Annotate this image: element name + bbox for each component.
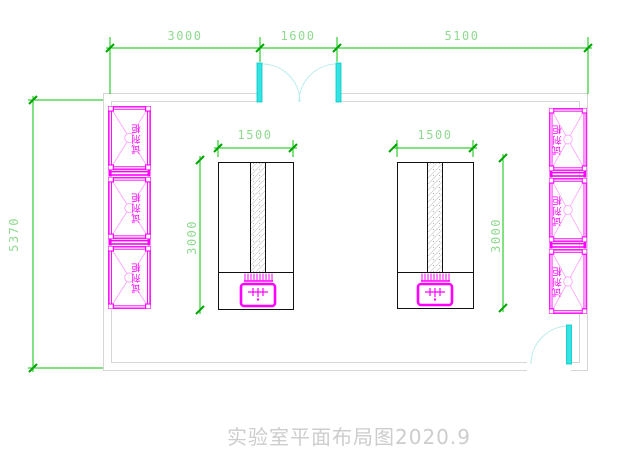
dim-label-bench-width-left: 1500 bbox=[230, 129, 280, 141]
dim-label-top-1600: 1600 bbox=[273, 30, 323, 42]
door-leaf-right bbox=[336, 63, 341, 102]
cabinet-label: 试剂柜 bbox=[130, 185, 145, 231]
reagent-shelf-strip-left bbox=[251, 163, 266, 273]
bottom-door-opening bbox=[527, 360, 571, 373]
cabinet-label: 试剂柜 bbox=[551, 259, 566, 305]
dimension-top bbox=[106, 37, 592, 94]
cabinet-label: 试剂柜 bbox=[551, 117, 566, 163]
door-arc bbox=[531, 326, 569, 364]
dim-label-top-5100: 5100 bbox=[437, 30, 487, 42]
dim-label-top-3000: 3000 bbox=[160, 30, 210, 42]
cabinet-label: 试剂柜 bbox=[130, 255, 145, 301]
floor-plan-svg bbox=[0, 0, 619, 469]
cabinet-label: 试剂柜 bbox=[130, 116, 145, 162]
dim-label-bench-depth-left: 3000 bbox=[186, 220, 198, 255]
room-walls bbox=[104, 94, 588, 371]
dimension-left bbox=[28, 96, 103, 372]
door-leaf bbox=[567, 325, 572, 364]
reagent-shelf-strip-right bbox=[428, 163, 443, 273]
dim-label-room-height: 5370 bbox=[8, 217, 20, 252]
door-leaf-left bbox=[257, 63, 262, 102]
dim-label-bench-depth-right: 3000 bbox=[490, 218, 502, 253]
cabinet-label: 试剂柜 bbox=[551, 188, 566, 234]
floor-plan-canvas: 3000 1600 5100 5370 1500 1500 3000 3000 … bbox=[0, 0, 619, 469]
bottom-right-door bbox=[531, 325, 572, 364]
drawing-title: 实验室平面布局图2020.9 bbox=[227, 421, 487, 450]
dim-label-bench-width-right: 1500 bbox=[410, 129, 460, 141]
top-door-opening bbox=[258, 91, 338, 104]
